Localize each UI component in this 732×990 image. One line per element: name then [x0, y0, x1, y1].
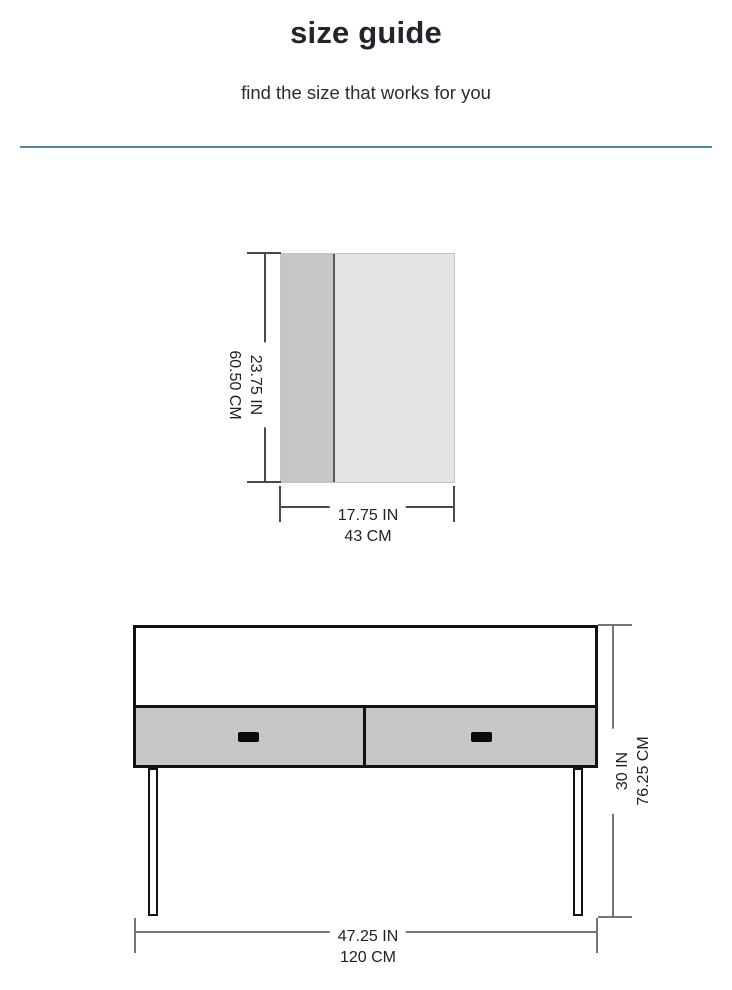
- panel-fold-line: [333, 254, 335, 482]
- table-width-cm: 120 CM: [338, 947, 398, 968]
- page-subtitle: find the size that works for you: [0, 82, 732, 104]
- panel-width-inches: 17.75 IN: [338, 505, 398, 526]
- table-height-cm: 76.25 CM: [633, 736, 654, 805]
- table-width-inches: 47.25 IN: [338, 926, 398, 947]
- teal-divider-line: [20, 146, 712, 148]
- table-height-label: 30 IN 76.25 CM: [608, 728, 658, 813]
- panel-width-cm: 43 CM: [338, 526, 398, 547]
- panel-dark-side: [281, 254, 333, 482]
- panel-width-label: 17.75 IN 43 CM: [330, 501, 406, 551]
- size-guide-page: size guide find the size that works for …: [0, 0, 732, 990]
- table-right-leg: [573, 768, 583, 916]
- panel-width-left-tick: [279, 486, 281, 522]
- table-width-right-tick: [596, 918, 598, 953]
- left-drawer-handle: [238, 732, 259, 742]
- table-height-inches: 30 IN: [612, 736, 633, 805]
- panel-height-label: 23.75 IN 60.50 CM: [220, 342, 270, 427]
- panel-diagram: [280, 253, 455, 483]
- drawer-divider-line: [363, 705, 366, 768]
- table-width-left-tick: [134, 918, 136, 953]
- table-height-bottom-tick: [598, 916, 632, 918]
- table-left-leg: [148, 768, 158, 916]
- right-drawer-handle: [471, 732, 492, 742]
- panel-height-bottom-tick: [247, 481, 281, 483]
- panel-width-right-tick: [453, 486, 455, 522]
- table-width-label: 47.25 IN 120 CM: [330, 922, 406, 972]
- page-title: size guide: [0, 14, 732, 52]
- panel-height-top-tick: [247, 252, 281, 254]
- panel-height-inches: 23.75 IN: [245, 350, 266, 419]
- table-height-top-tick: [598, 624, 632, 626]
- panel-height-cm: 60.50 CM: [224, 350, 245, 419]
